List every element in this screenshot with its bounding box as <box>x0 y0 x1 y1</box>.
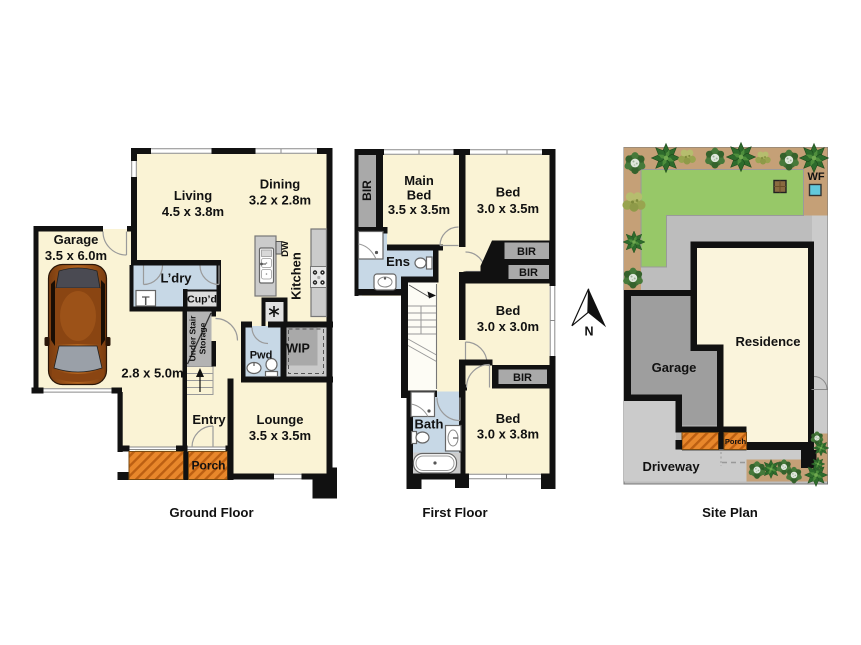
svg-text:Bed: Bed <box>407 188 432 203</box>
svg-text:Under Stair: Under Stair <box>188 315 198 362</box>
svg-text:3.5 x 3.5m: 3.5 x 3.5m <box>249 428 311 443</box>
svg-text:WIP: WIP <box>286 342 310 356</box>
svg-text:First Floor: First Floor <box>422 505 487 520</box>
svg-text:Bed: Bed <box>496 185 521 200</box>
svg-text:WF: WF <box>807 171 824 183</box>
svg-text:Residence: Residence <box>735 334 800 349</box>
svg-text:Cup’d: Cup’d <box>187 294 217 306</box>
svg-text:Garage: Garage <box>652 360 697 375</box>
svg-text:BIR: BIR <box>360 180 374 201</box>
svg-text:Ens: Ens <box>386 254 410 269</box>
svg-text:BIR: BIR <box>513 372 532 384</box>
svg-text:Entry: Entry <box>192 412 226 427</box>
svg-text:L’dry: L’dry <box>160 271 192 286</box>
svg-text:Main: Main <box>404 173 434 188</box>
svg-text:3.5 x 6.0m: 3.5 x 6.0m <box>45 248 107 263</box>
svg-text:Bed: Bed <box>496 411 521 426</box>
svg-text:Storage: Storage <box>198 322 208 354</box>
svg-text:Driveway: Driveway <box>642 459 700 474</box>
svg-text:BIR: BIR <box>519 267 538 279</box>
svg-text:Porch: Porch <box>191 459 225 473</box>
svg-text:Lounge: Lounge <box>257 412 304 427</box>
svg-text:Bath: Bath <box>415 417 444 432</box>
svg-text:3.0 x 3.8m: 3.0 x 3.8m <box>477 427 539 442</box>
svg-text:Site Plan: Site Plan <box>702 505 758 520</box>
svg-text:4.5 x 3.8m: 4.5 x 3.8m <box>162 204 224 219</box>
svg-text:Pwd: Pwd <box>250 350 273 362</box>
svg-text:Living: Living <box>174 188 212 203</box>
svg-text:BIR: BIR <box>517 246 536 258</box>
svg-text:Dining: Dining <box>260 177 300 192</box>
svg-text:N: N <box>584 325 593 339</box>
svg-text:3.5 x 3.5m: 3.5 x 3.5m <box>388 202 450 217</box>
svg-text:Bed: Bed <box>496 303 521 318</box>
svg-text:Garage: Garage <box>54 232 99 247</box>
svg-text:3.0 x 3.0m: 3.0 x 3.0m <box>477 319 539 334</box>
svg-text:Kitchen: Kitchen <box>289 252 304 300</box>
svg-text:2.8 x 5.0m: 2.8 x 5.0m <box>121 366 183 381</box>
svg-text:Porch: Porch <box>725 437 747 446</box>
svg-text:3.2 x 2.8m: 3.2 x 2.8m <box>249 193 311 208</box>
svg-text:Ground Floor: Ground Floor <box>169 505 253 520</box>
svg-text:3.0 x 3.5m: 3.0 x 3.5m <box>477 201 539 216</box>
